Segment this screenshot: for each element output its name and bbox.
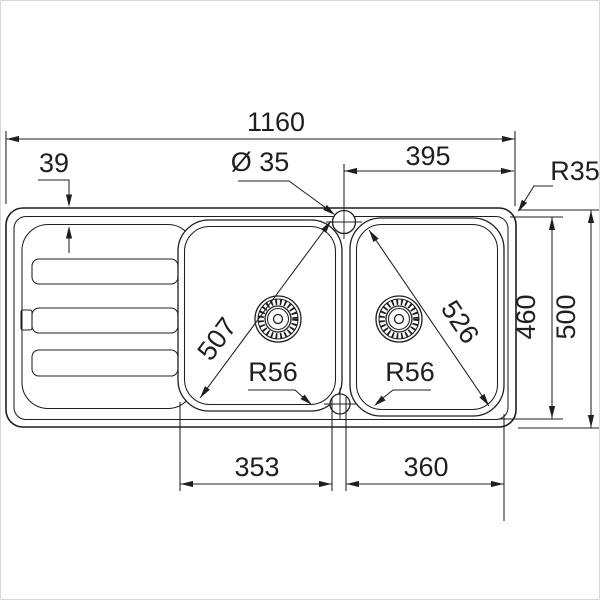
dim-label-right-bowl-width: 360 xyxy=(403,452,448,482)
dim-label-rim-width: 39 xyxy=(39,148,69,178)
dim-label-left-bowl-width: 353 xyxy=(234,452,279,482)
drainboard-rib-1 xyxy=(32,259,178,284)
dim-label-right-bowl-radius: R56 xyxy=(385,357,435,387)
dim-label-overall-width: 1160 xyxy=(247,107,305,137)
dim-label-inner-depth: 460 xyxy=(511,294,541,339)
drainboard-rib-2 xyxy=(32,308,178,333)
dim-label-left-bowl-radius: R56 xyxy=(248,357,298,387)
dim-tap-to-right-edge: 395 xyxy=(344,141,514,206)
drainboard-rib-3 xyxy=(32,350,178,376)
dim-label-tap-to-right-edge: 395 xyxy=(405,141,450,171)
dim-tap-hole-diameter: Ø 35 xyxy=(231,147,337,217)
drainboard-outline xyxy=(22,225,194,409)
dim-left-bowl-width: 353 xyxy=(180,399,332,491)
dim-label-tap-hole-diameter: Ø 35 xyxy=(231,147,290,177)
sink-dimension-drawing: 1160 39 Ø 35 395 R35 460 500 xyxy=(1,1,599,599)
sink-dimension-drawing-image: 1160 39 Ø 35 395 R35 460 500 xyxy=(0,0,600,600)
dim-rim-width: 39 xyxy=(38,148,72,253)
drainboard-rib-tab xyxy=(21,310,32,330)
dim-label-overall-depth: 500 xyxy=(551,294,581,339)
drainboard xyxy=(21,225,194,409)
dim-label-corner-radius: R35 xyxy=(550,156,599,186)
dim-corner-radius: R35 xyxy=(515,156,599,214)
